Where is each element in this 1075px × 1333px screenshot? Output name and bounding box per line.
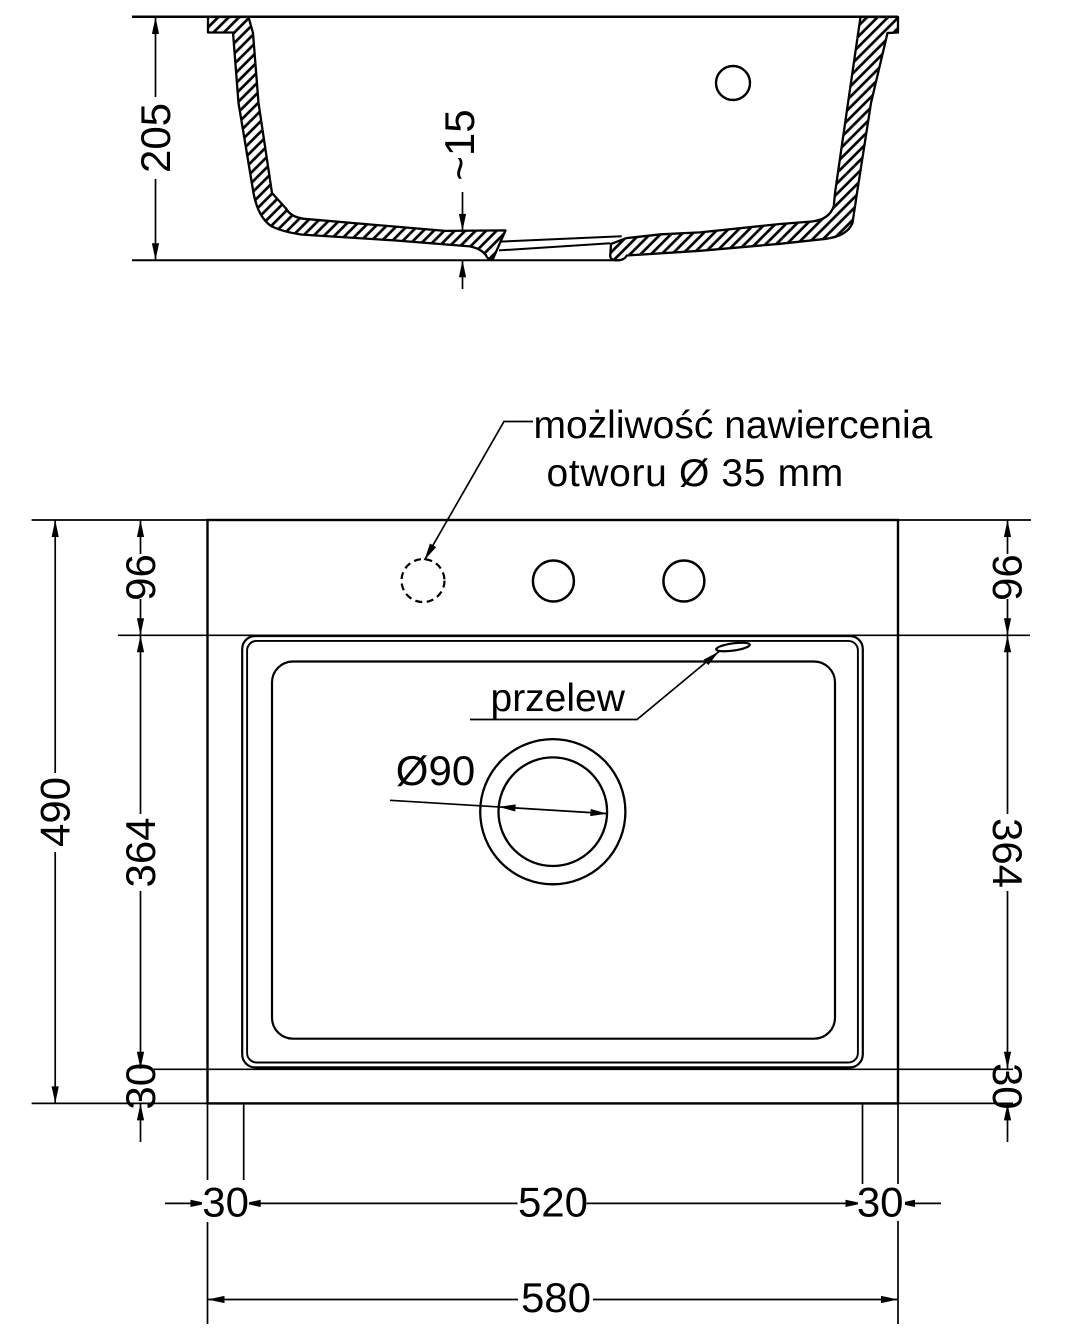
svg-text:otworu Ø 35 mm: otworu Ø 35 mm	[547, 452, 844, 495]
svg-text:30: 30	[202, 1179, 249, 1226]
svg-text:30: 30	[117, 1063, 164, 1110]
svg-text:364: 364	[117, 817, 164, 887]
svg-text:364: 364	[984, 818, 1031, 888]
svg-text:520: 520	[518, 1179, 588, 1226]
svg-text:580: 580	[521, 1274, 591, 1321]
svg-text:30: 30	[984, 1063, 1031, 1110]
svg-text:96: 96	[984, 554, 1031, 601]
svg-text:205: 205	[132, 103, 179, 173]
svg-text:96: 96	[117, 554, 164, 601]
svg-text:~15: ~15	[436, 109, 483, 180]
svg-text:30: 30	[857, 1179, 904, 1226]
svg-text:możliwość nawiercenia: możliwość nawiercenia	[534, 404, 933, 447]
svg-text:490: 490	[32, 777, 79, 847]
svg-text:przelew: przelew	[491, 677, 626, 720]
svg-text:Ø90: Ø90	[396, 747, 475, 794]
